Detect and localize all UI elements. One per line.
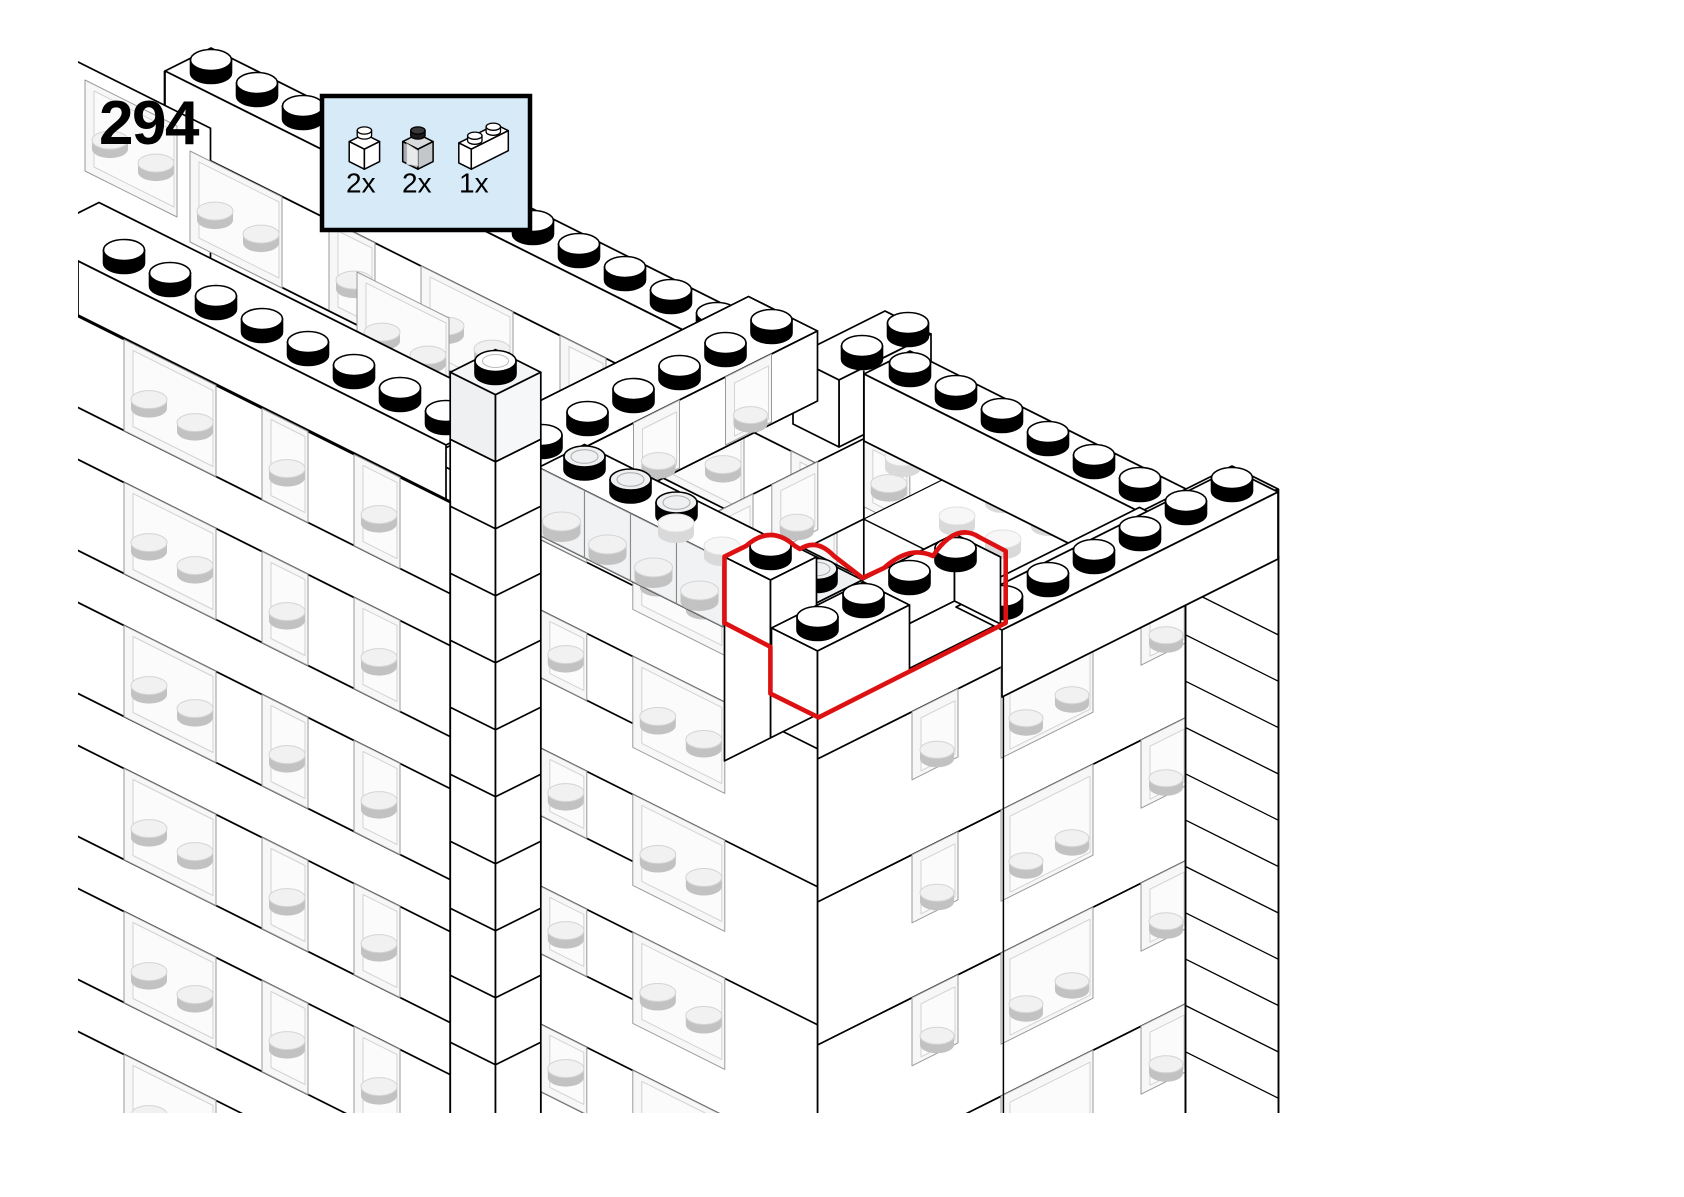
svg-text:2x: 2x [402, 168, 432, 199]
svg-text:2x: 2x [346, 168, 376, 199]
svg-text:1x: 1x [459, 168, 489, 199]
svg-text:294: 294 [99, 89, 200, 158]
